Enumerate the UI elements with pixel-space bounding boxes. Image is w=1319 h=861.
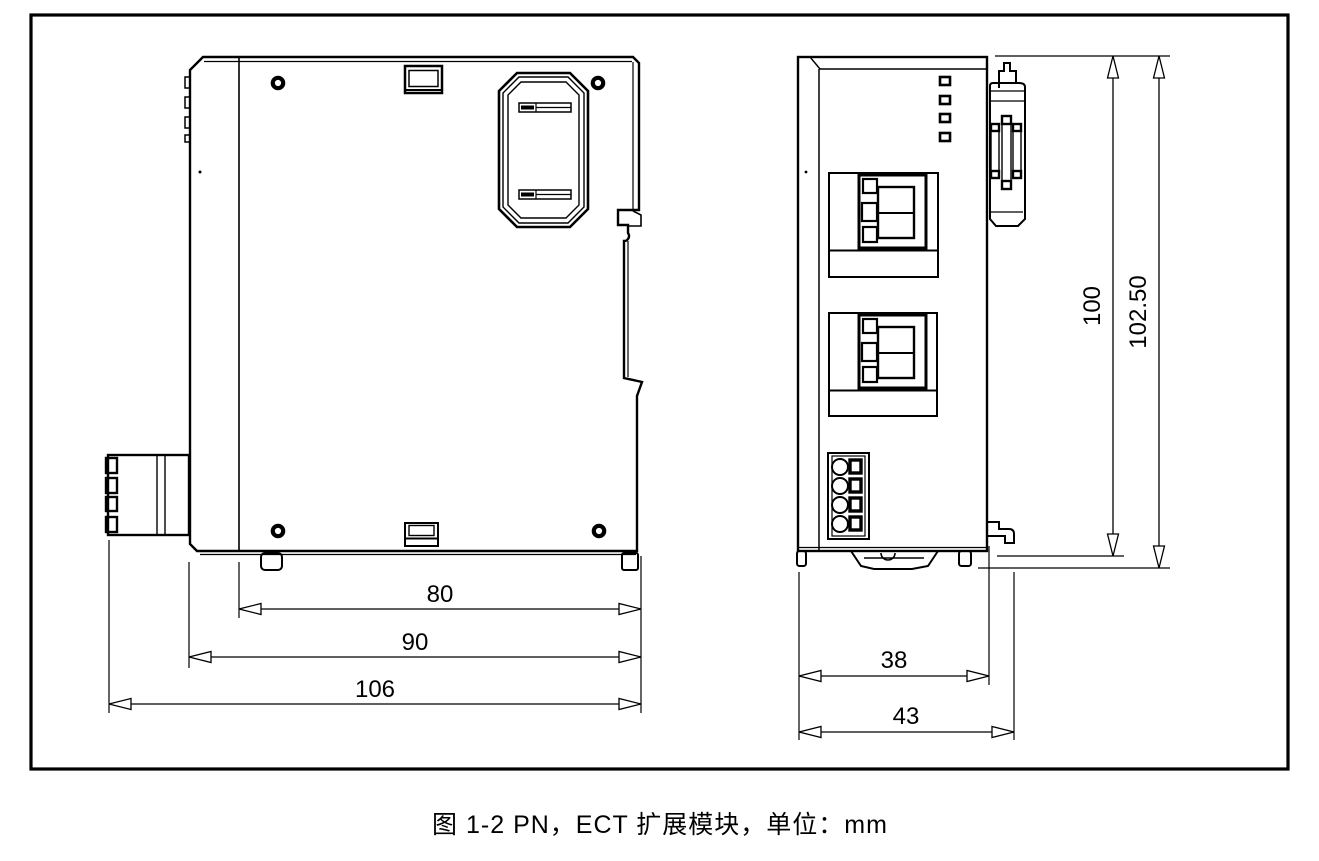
side-view-dimensions: 80 90 106	[109, 540, 641, 713]
status-led-icons	[940, 77, 950, 141]
figure-caption: 图 1-2 PN，ECT 扩展模块，单位：mm	[432, 811, 888, 839]
bus-top-hook	[999, 63, 1016, 88]
bottom-clip	[405, 523, 438, 546]
arrow-down-icon	[1154, 546, 1165, 568]
bus-slots	[991, 116, 1021, 189]
pin-dot	[805, 171, 808, 174]
din-pawl	[629, 211, 641, 226]
dim-80: 80	[239, 581, 641, 615]
arrow-left-icon	[189, 652, 211, 663]
bus-connector	[988, 63, 1025, 543]
arrow-left-icon	[239, 604, 261, 615]
slot-frame	[499, 73, 588, 227]
rj45-port-2	[829, 313, 937, 416]
dim-80-label: 80	[427, 581, 454, 608]
arrow-right-icon	[967, 671, 989, 682]
front-foot-right	[959, 551, 971, 566]
dimension-drawing: 80 90 106	[0, 0, 1319, 861]
front-view	[797, 57, 1025, 569]
bus-bottom-hook	[988, 522, 1014, 543]
front-foot-left	[797, 551, 806, 566]
arrow-left-icon	[799, 727, 821, 738]
arrow-left-icon	[799, 671, 821, 682]
arrow-down-icon	[1108, 534, 1119, 556]
side-foot-right	[622, 553, 638, 570]
top-clip	[405, 66, 442, 93]
din-rail-base	[851, 551, 938, 569]
slot-bar-top	[519, 103, 571, 112]
pin-dot	[199, 171, 202, 174]
figure-page: 80 90 106	[0, 0, 1319, 861]
arrow-right-icon	[619, 699, 641, 710]
arrow-right-icon	[992, 727, 1014, 738]
mounting-holes	[273, 78, 604, 536]
arrow-left-icon	[109, 699, 131, 710]
dim-100-label: 100	[1079, 286, 1106, 326]
side-terminal-block	[106, 455, 189, 535]
arrow-up-icon	[1108, 56, 1119, 78]
drawing-border	[31, 15, 1288, 769]
dim-106: 106	[109, 676, 641, 710]
terminal-slots	[850, 460, 861, 530]
arrow-up-icon	[1154, 56, 1165, 78]
dim-102-50: 102.50	[1125, 56, 1165, 568]
arrow-right-icon	[619, 652, 641, 663]
slot-bar-bottom	[519, 190, 571, 199]
front-body-outline	[798, 57, 987, 551]
dim-100: 100	[1079, 56, 1119, 556]
power-terminal-block	[828, 453, 869, 539]
arrow-right-icon	[619, 604, 641, 615]
dim-90: 90	[189, 629, 641, 663]
dim-43-label: 43	[893, 703, 920, 730]
corner-chamfer-line	[810, 57, 820, 69]
dim-106-label: 106	[355, 676, 395, 703]
side-view	[106, 57, 642, 570]
side-foot-left	[261, 553, 282, 570]
dim-43: 43	[799, 703, 1014, 738]
dim-90-label: 90	[402, 629, 429, 656]
dim-102-50-label: 102.50	[1125, 275, 1152, 348]
side-view-body-outline	[190, 57, 642, 551]
rj45-port-1	[829, 173, 938, 277]
dim-38-label: 38	[881, 647, 908, 674]
dim-38: 38	[799, 647, 989, 682]
front-view-dimensions: 38 43 100 102.50	[799, 56, 1170, 740]
